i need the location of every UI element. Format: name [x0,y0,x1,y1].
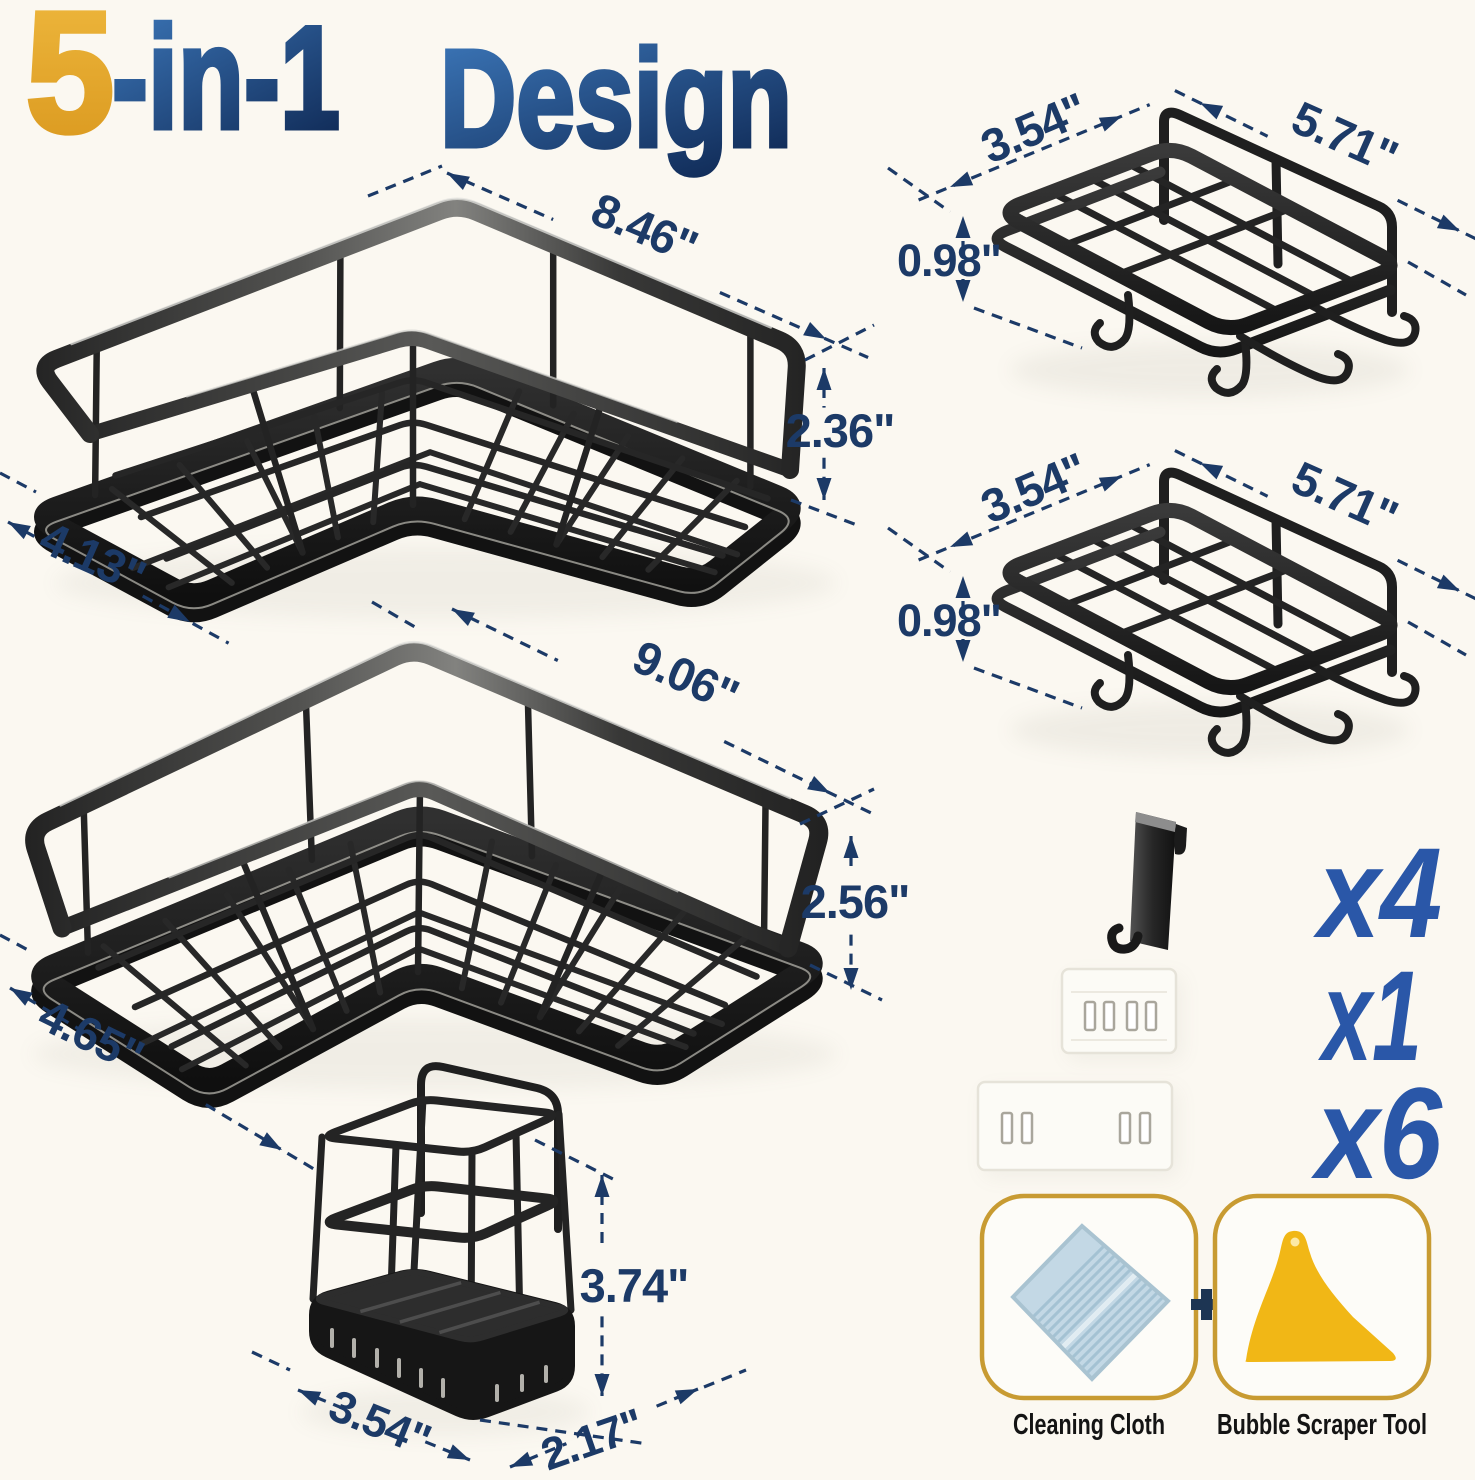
svg-text:-in-1: -in-1 [112,0,340,159]
svg-text:5: 5 [26,0,114,168]
svg-text:Bubble Scraper Tool: Bubble Scraper Tool [1217,1409,1427,1441]
svg-text:0.98": 0.98" [897,235,1001,286]
svg-text:2.36": 2.36" [786,404,895,457]
svg-text:0.98": 0.98" [897,595,1001,646]
svg-text:x4: x4 [1313,822,1442,965]
svg-text:x6: x6 [1311,1060,1443,1206]
svg-text:Design: Design [440,22,792,176]
svg-text:Cleaning Cloth: Cleaning Cloth [1013,1409,1165,1441]
svg-text:2.56": 2.56" [801,875,910,928]
svg-text:3.74": 3.74" [580,1259,689,1312]
